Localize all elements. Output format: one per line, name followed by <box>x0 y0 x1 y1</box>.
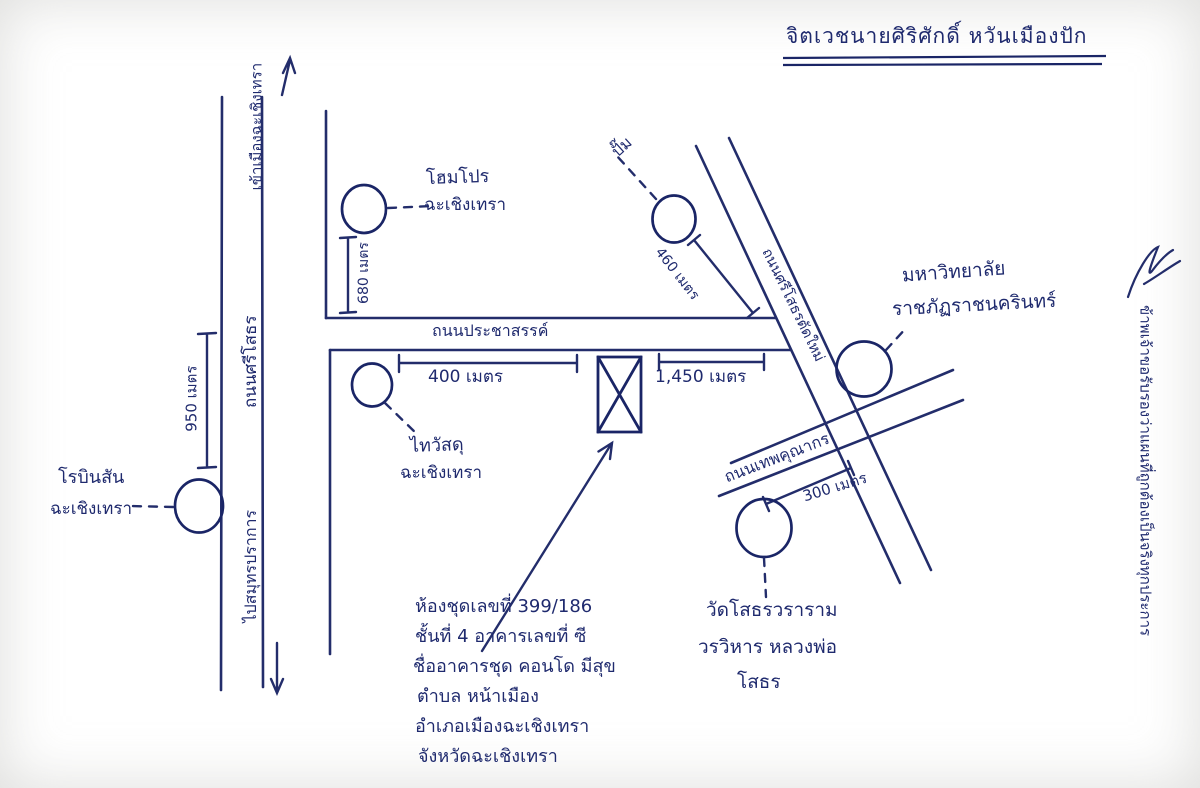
landmark-circles <box>175 185 892 557</box>
temple-label-1: วัดโสธรวราราม <box>706 600 838 622</box>
address-line-2: ชั้นที่ 4 อาคารเลขที่ ซี <box>415 627 616 657</box>
road-left-line1 <box>221 97 222 690</box>
property-address-block: ห้องชุดเลขที่ 399/186 ชั้นที่ 4 อาคารเลข… <box>415 597 616 777</box>
address-line-3: ชื่ออาคารชุด คอนโด มีสุข <box>413 657 616 687</box>
property-marker <box>598 357 641 432</box>
homepro-label-2: ฉะเชิงเทรา <box>424 196 506 216</box>
dim-950-label: 950 เมตร <box>183 354 200 444</box>
address-line-1: ห้องชุดเลขที่ 399/186 <box>415 597 616 627</box>
direction-enter-city-label: เข้าเมืองฉะเชิงเทรา <box>248 56 265 198</box>
arrow-down <box>271 643 283 693</box>
certification-note: ข้าพเจ้าขอรับรองว่าแผนที่ถูกต้องเป็นจริง… <box>1136 305 1153 685</box>
homepro-label-1: โฮมโปร <box>426 167 490 190</box>
thai-watsadu-circle <box>352 364 392 407</box>
university-connector <box>886 327 907 350</box>
road-prachasan-label: ถนนประชาสรรค์ <box>432 322 548 340</box>
gas-station-connector <box>617 156 656 199</box>
address-line-5: อำเภอเมืองฉะเชิงเทรา <box>415 717 616 747</box>
thai-watsadu-label-2: ฉะเชิงเทรา <box>400 464 482 484</box>
title-underline <box>783 56 1106 65</box>
title-underline-2 <box>783 64 1102 65</box>
road-newcut-line2 <box>729 138 931 570</box>
signature-squiggle <box>1128 247 1180 297</box>
dim-950-line <box>198 333 216 468</box>
dim-400-label: 400 เมตร <box>428 368 503 388</box>
dim-680-label: 680 เมตร <box>356 232 372 314</box>
temple-connector <box>764 558 766 597</box>
address-line-6: จังหวัดฉะเชิงเทรา <box>418 747 616 777</box>
road-newcut-line1 <box>696 146 900 583</box>
robinson-label-2: ฉะเชิงเทรา <box>50 500 132 520</box>
robinson-connector <box>129 506 173 507</box>
temple-label-3: โสธร <box>737 672 781 694</box>
thai-watsadu-connector <box>385 403 419 436</box>
robinson-label-1: โรบินสัน <box>58 468 124 489</box>
map-title: จิตเวชนายศิริศักดิ์ หวันเมืองปัก <box>786 24 1088 48</box>
property-x <box>598 357 641 432</box>
homepro-circle <box>342 185 386 233</box>
address-line-4: ตำบล หน้าเมือง <box>417 687 616 717</box>
road-si-sothon-label: ถนนศรีโสธร <box>242 302 262 422</box>
title-underline-1 <box>783 56 1106 58</box>
university-circle <box>837 342 892 397</box>
thai-watsadu-label-1: ไทวัสดุ <box>410 435 464 458</box>
dim-1450-label: 1,450 เมตร <box>655 368 746 388</box>
robinson-circle <box>175 480 223 533</box>
temple-circle <box>737 499 792 557</box>
dim-680-line <box>340 237 356 313</box>
gas-station-circle <box>653 196 696 243</box>
arrow-up <box>282 58 295 95</box>
direction-samut-prakan-label: ไปสมุทรปราการ <box>242 491 260 641</box>
temple-label-2: วรวิหาร หลวงพ่อ <box>698 637 837 659</box>
hand-drawn-map: จิตเวชนายศิริศักดิ์ หวันเมืองปัก เข้าเมื… <box>0 0 1200 788</box>
